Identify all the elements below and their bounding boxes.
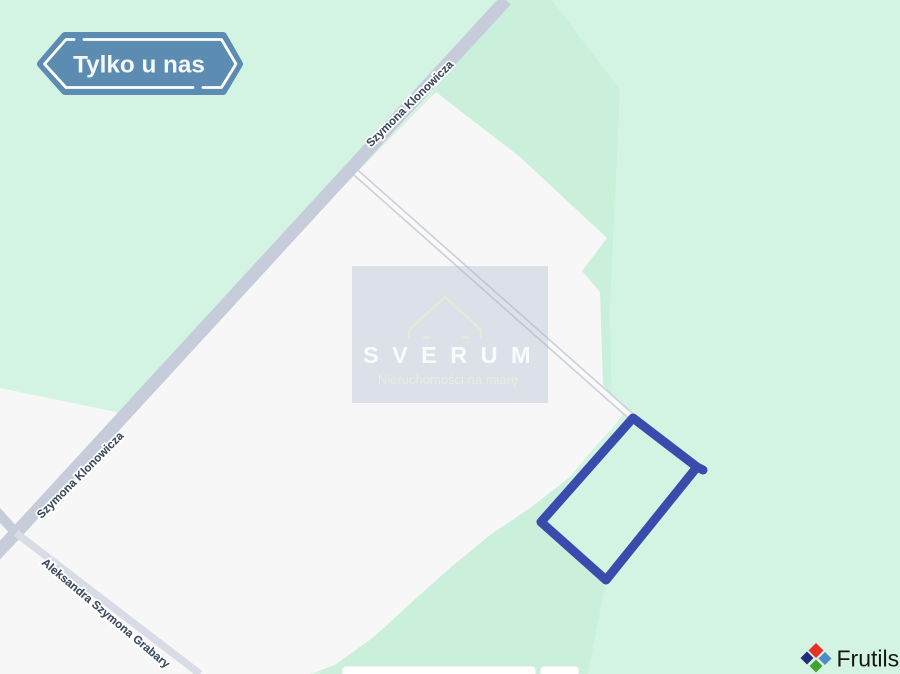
- svg-text:Tylko u nas: Tylko u nas: [73, 52, 205, 79]
- svg-text:Frutils: Frutils: [837, 646, 900, 672]
- svg-text:SVERUM: SVERUM: [363, 342, 544, 368]
- svg-text:Nieruchomości na miarę: Nieruchomości na miarę: [378, 372, 518, 387]
